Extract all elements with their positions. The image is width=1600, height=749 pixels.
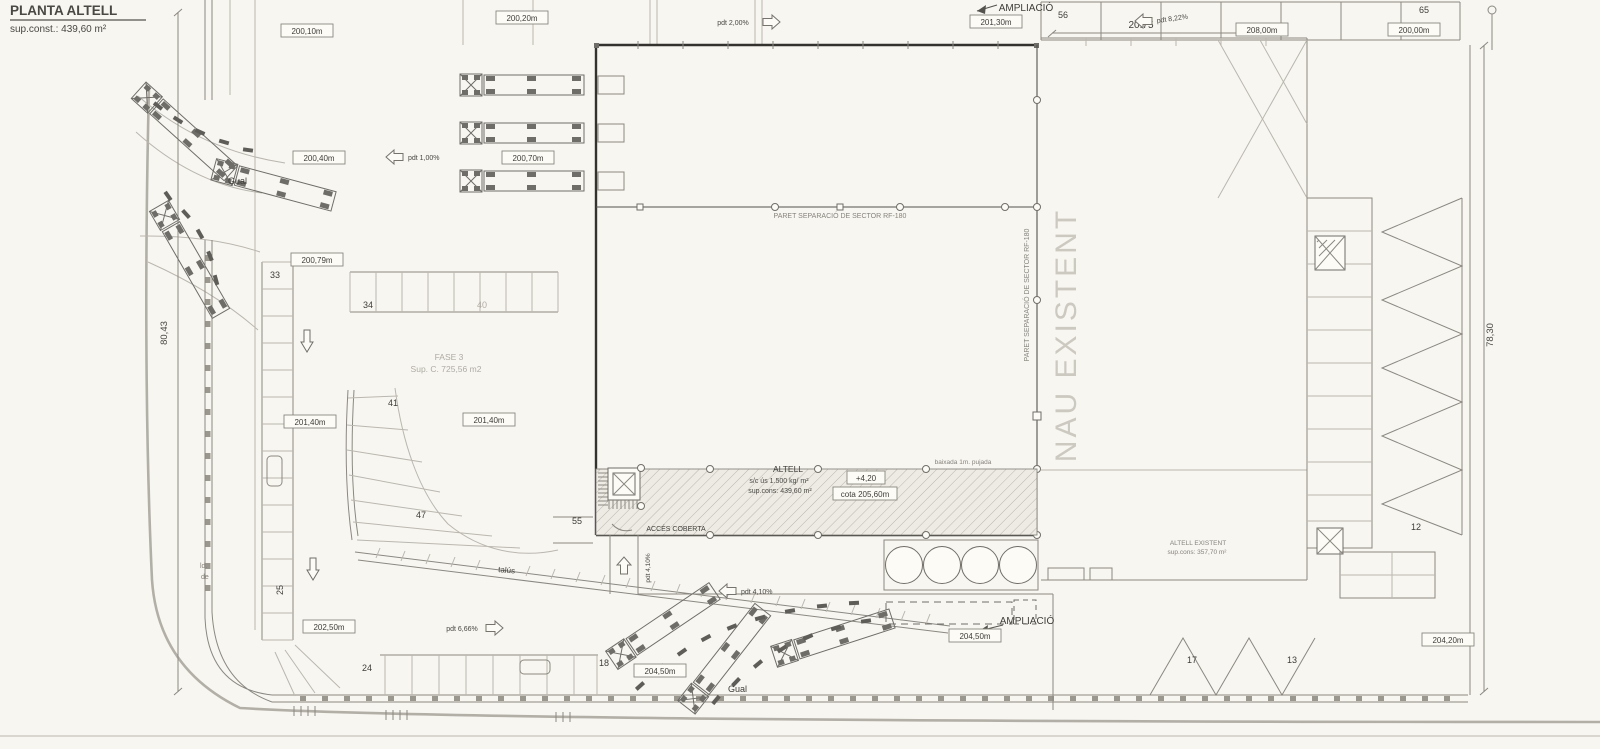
tank xyxy=(962,547,999,584)
svg-text:201,30m: 201,30m xyxy=(980,18,1011,27)
sheet-subtitle: sup.const.: 439,60 m² xyxy=(10,24,107,35)
svg-text:33: 33 xyxy=(270,270,280,280)
altell-existent-area: sup.cons: 357,70 m² xyxy=(1168,549,1228,556)
slope-label: pdt 1,00% xyxy=(408,155,440,162)
svg-text:18: 18 xyxy=(599,658,609,668)
svg-text:200,40m: 200,40m xyxy=(303,154,334,163)
altell-cota-box: cota 205,60m xyxy=(833,487,897,500)
svg-text:cota 205,60m: cota 205,60m xyxy=(841,490,890,499)
svg-text:208,00m: 208,00m xyxy=(1246,26,1277,35)
acces-coberta-label: ACCÉS COBERTA xyxy=(646,524,706,533)
svg-text:56: 56 xyxy=(1058,10,1068,20)
fase-label: FASE 3 xyxy=(435,352,464,362)
svg-text:24: 24 xyxy=(362,663,372,673)
svg-text:200,20m: 200,20m xyxy=(506,14,537,23)
svg-text:200,00m: 200,00m xyxy=(1398,26,1429,35)
right-dimension: 78,30 xyxy=(1485,323,1496,347)
talus-label: talús xyxy=(498,565,516,575)
altell-level-box: +4,20 xyxy=(847,471,885,484)
svg-text:55: 55 xyxy=(572,516,582,526)
svg-text:202,50m: 202,50m xyxy=(313,623,344,632)
gual-bottom-label: Gual xyxy=(728,684,747,694)
tank xyxy=(924,547,961,584)
ampliacio-bottom-label: AMPLIACIÓ xyxy=(1000,614,1055,627)
svg-text:200,70m: 200,70m xyxy=(512,154,543,163)
left-dimension: 80,43 xyxy=(159,321,170,345)
svg-text:25: 25 xyxy=(275,585,285,595)
sector-wall-v-label: PARET SEPARACIÓ DE SECTOR RF-180 xyxy=(1022,228,1031,361)
gual-top-label: Gual xyxy=(228,176,247,186)
plan-drawing: 80,43 78,30 20.75 AMPLIACIÓ PARET SEPARA… xyxy=(0,0,1600,749)
sector-wall-h-label: PARET SEPARACIÓ DE SECTOR RF-180 xyxy=(774,211,907,220)
svg-text:204,50m: 204,50m xyxy=(959,632,990,641)
paper-background xyxy=(0,0,1600,749)
ampliacio-top-label: AMPLIACIÓ xyxy=(999,1,1054,14)
slope-label: pdt 6,66% xyxy=(446,626,478,633)
ramp-note: baixada 1m. pujada xyxy=(935,459,992,466)
slope-label: pdt 4,10% xyxy=(645,553,652,582)
svg-text:40: 40 xyxy=(477,300,487,310)
slope-label: pdt 4,10% xyxy=(741,589,773,596)
svg-text:204,20m: 204,20m xyxy=(1432,636,1463,645)
svg-text:200,10m: 200,10m xyxy=(291,27,322,36)
svg-text:34: 34 xyxy=(363,300,373,310)
fase-sup-label: Sup. C. 725,56 m2 xyxy=(411,364,482,374)
nau-existent-label: NAU EXISTENT xyxy=(1050,208,1083,462)
svg-text:200,79m: 200,79m xyxy=(301,256,332,265)
altell-existent-name: ALTELL EXISTENT xyxy=(1170,540,1226,547)
svg-text:201,40m: 201,40m xyxy=(473,416,504,425)
svg-text:17: 17 xyxy=(1187,655,1197,665)
sheet-title: PLANTA ALTELL xyxy=(10,3,117,18)
svg-text:41: 41 xyxy=(388,398,398,408)
site-plan-sheet: 80,43 78,30 20.75 AMPLIACIÓ PARET SEPARA… xyxy=(0,0,1600,749)
altell-mezzanine: ACCÉS COBERTA ALTELL s/c ús 1.500 kg/ m²… xyxy=(596,459,1037,539)
svg-text:13: 13 xyxy=(1287,655,1297,665)
svg-text:201,40m: 201,40m xyxy=(294,418,325,427)
street-name-2: de xyxy=(201,574,209,581)
svg-text:204,50m: 204,50m xyxy=(644,667,675,676)
slope-label: pdt 2,00% xyxy=(717,20,749,27)
altell-name: ALTELL xyxy=(773,464,803,474)
svg-text:65: 65 xyxy=(1419,5,1429,15)
svg-text:47: 47 xyxy=(416,510,426,520)
altell-load: s/c ús 1.500 kg/ m² xyxy=(749,478,809,485)
altell-area: sup.cons: 439,60 m² xyxy=(748,488,812,495)
street-name-1: ld. xyxy=(200,563,207,570)
tank xyxy=(1000,547,1037,584)
svg-text:12: 12 xyxy=(1411,522,1421,532)
tank xyxy=(886,547,923,584)
svg-text:+4,20: +4,20 xyxy=(856,474,877,483)
